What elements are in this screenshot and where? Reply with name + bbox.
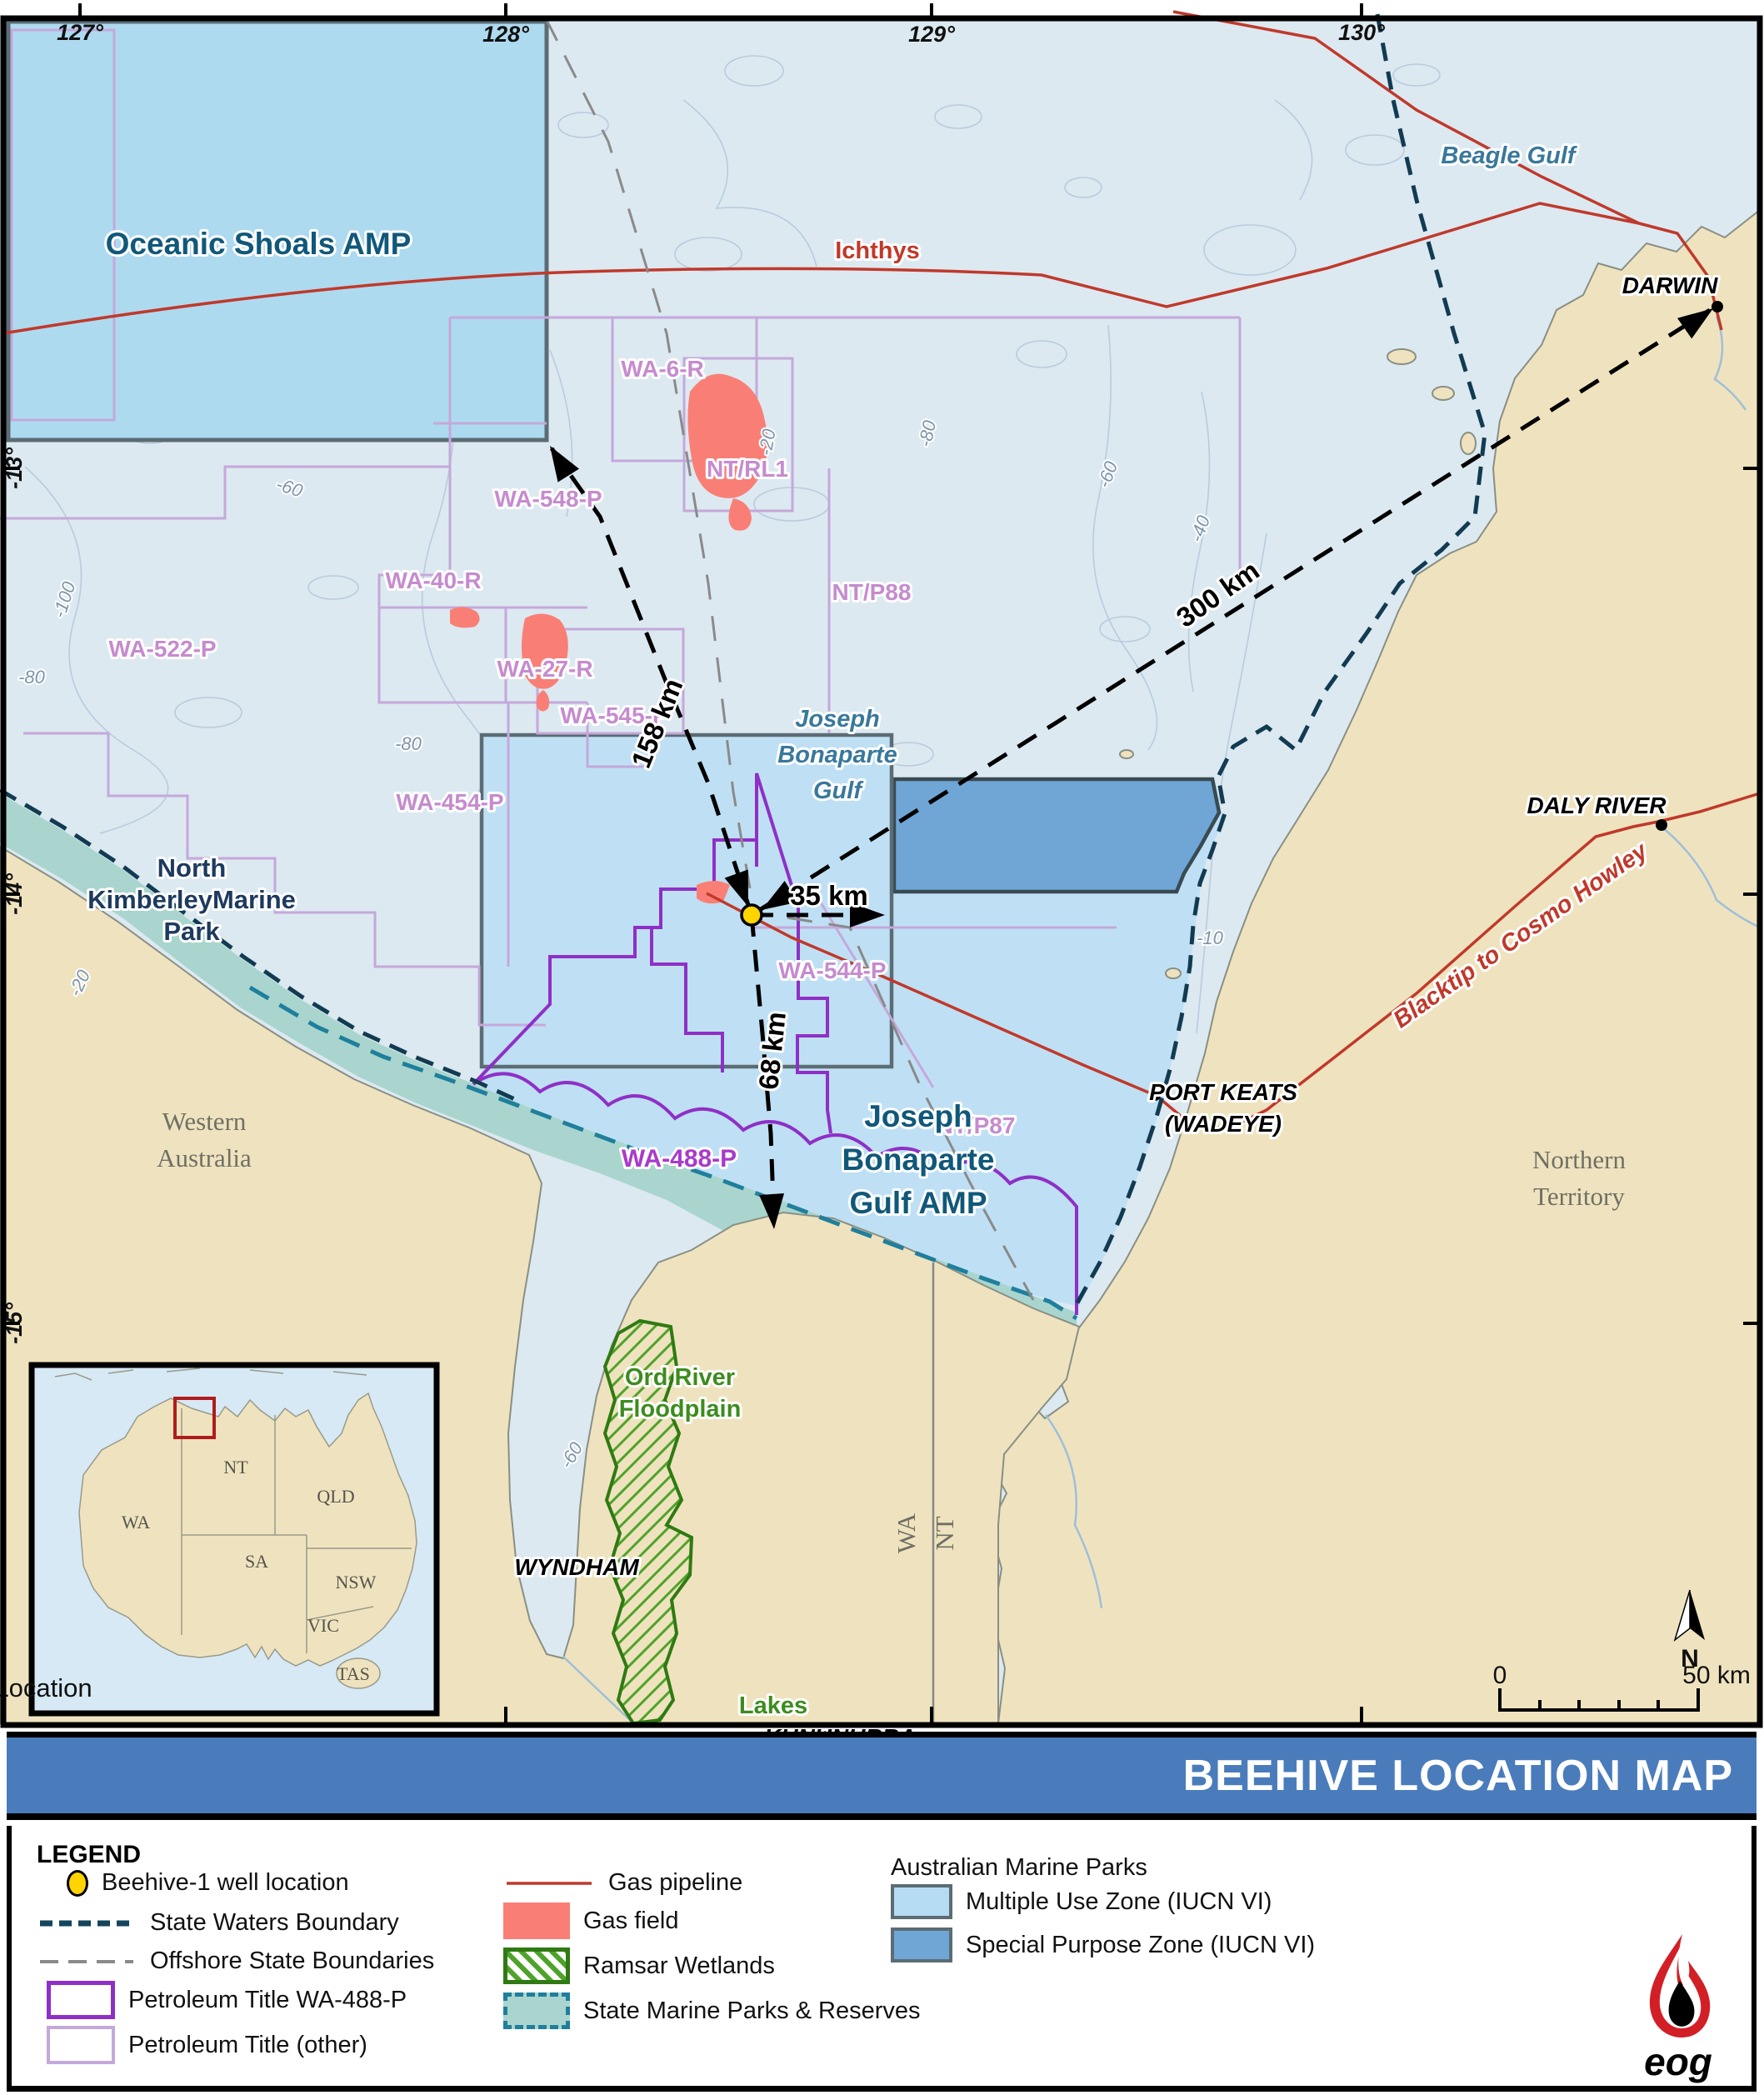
inset-state-qld: QLD	[317, 1486, 354, 1507]
ord-river-label: Ord River	[625, 1364, 735, 1391]
contour-label: -80	[18, 667, 46, 687]
lon-label: 130°	[1338, 20, 1385, 45]
jbg-label: Joseph	[795, 706, 880, 732]
title-label-wa544: WA-544-P	[778, 957, 886, 983]
gas-field-swatch-icon	[503, 1902, 570, 1939]
eog-logo: eog	[1628, 1932, 1728, 2079]
inset-location-label: Location	[0, 1673, 92, 1702]
nk-marine-park-label: North	[157, 853, 227, 882]
jbg-amp-label: Gulf AMP	[849, 1186, 987, 1220]
legend-heading: LEGEND	[37, 1841, 141, 1869]
jbg-amp-label: Bonaparte	[842, 1142, 995, 1177]
western-australia-label: Australia	[157, 1143, 252, 1172]
legend-item-multiple-use-zone: Multiple Use Zone (IUCN VI)	[891, 1884, 1272, 1919]
oceanic-shoals-amp-label: Oceanic Shoals AMP	[106, 227, 412, 261]
contour-label: -10	[1197, 927, 1224, 948]
northern-territory-label: Territory	[1533, 1182, 1625, 1211]
multiple-use-zone-swatch-icon	[891, 1884, 952, 1919]
lon-label: 128°	[482, 22, 529, 47]
daly-river-label: DALY RIVER	[1527, 792, 1667, 818]
title-label-wa488: WA-488-P	[622, 1145, 737, 1172]
jbg-label: Bonaparte	[777, 742, 897, 768]
jbg-amp-label: Joseph	[864, 1099, 972, 1133]
title-label-wa548: WA-548-P	[494, 486, 602, 512]
inset-state-nt: NT	[223, 1457, 248, 1477]
wa488-outline-icon	[47, 1981, 115, 2019]
legend-item-offshore-boundaries: Offshore State Boundaries	[37, 1947, 434, 1975]
lon-label: 129°	[908, 22, 955, 47]
title-label-ntp88: NT/P88	[832, 579, 912, 605]
ord-river-label: Floodplain	[619, 1396, 742, 1422]
legend-item-well: Beehive-1 well location	[37, 1869, 349, 1897]
title-bar: BEEHIVE LOCATION MAP	[7, 1732, 1757, 1820]
legend-item-state-marine-parks: State Marine Parks & Reserves	[503, 1992, 921, 2029]
distance-label-35: 35 km	[790, 880, 868, 911]
contour-label: -80	[395, 733, 422, 754]
western-australia-label: Western	[162, 1107, 247, 1136]
eog-flame-icon	[1637, 1932, 1720, 2041]
ramsar-swatch-icon	[503, 1947, 570, 1984]
north-label: N	[1681, 1645, 1699, 1672]
legend-item-gas-field: Gas field	[503, 1902, 678, 1939]
main-map: 127° 128° 129° 130° -13° -14° -15° Ocean…	[0, 0, 1764, 1732]
state-waters-line-icon	[37, 1917, 137, 1930]
inset-state-sa: SA	[245, 1551, 268, 1572]
legend-item-gas-pipeline: Gas pipeline	[503, 1869, 742, 1897]
title-label-ntrl1: NT/RL1	[707, 456, 788, 482]
port-keats-label: PORT KEATS	[1149, 1079, 1297, 1105]
legend-item-ramsar: Ramsar Wetlands	[503, 1947, 775, 1984]
legend-item-state-waters: State Waters Boundary	[37, 1909, 399, 1937]
beehive-1-well-marker	[742, 905, 762, 925]
jbg-label: Gulf	[813, 777, 864, 804]
inset-state-tas: TAS	[337, 1663, 370, 1684]
inset-state-nsw: NSW	[336, 1572, 377, 1592]
inset-state-wa: WA	[122, 1512, 150, 1532]
legend-item-special-purpose-zone: Special Purpose Zone (IUCN VI)	[891, 1927, 1315, 1962]
nk-marine-park-label: Park	[163, 917, 220, 946]
state-marine-parks-swatch-icon	[503, 1992, 570, 2029]
eog-logo-text: eog	[1628, 2045, 1728, 2079]
port-keats-label: (WADEYE)	[1165, 1111, 1282, 1137]
wa-border-label: WA	[892, 1512, 921, 1553]
wyndham-label: WYNDHAM	[514, 1554, 639, 1580]
inset-state-vic: VIC	[307, 1615, 339, 1636]
inset-map: WA NT QLD SA NSW VIC TAS Location	[0, 1365, 437, 1713]
well-icon	[67, 1870, 88, 1897]
title-label-wa454: WA-454-P	[396, 789, 503, 815]
scale-zero-label: 0	[1493, 1662, 1507, 1689]
offshore-boundary-line-icon	[37, 1955, 137, 1968]
map-title: BEEHIVE LOCATION MAP	[1183, 1751, 1757, 1801]
lakes-argyle-label: Lakes	[739, 1692, 807, 1719]
other-title-outline-icon	[47, 2026, 115, 2064]
nt-border-label: NT	[930, 1516, 959, 1550]
title-label-wa6r: WA-6-R	[621, 356, 704, 382]
legend-item-title-other: Petroleum Title (other)	[37, 2026, 367, 2064]
title-label-wa40r: WA-40-R	[385, 567, 481, 593]
lon-label: 127°	[57, 20, 103, 45]
gas-pipeline-line-icon	[503, 1877, 595, 1890]
title-label-wa522: WA-522-P	[108, 636, 216, 662]
darwin-label: DARWIN	[1622, 272, 1718, 298]
legend-item-title-wa488: Petroleum Title WA-488-P	[37, 1981, 407, 2019]
special-purpose-zone-swatch-icon	[891, 1927, 952, 1962]
northern-territory-label: Northern	[1532, 1145, 1626, 1174]
ichthys-pipeline-label: Ichthys	[835, 237, 920, 264]
nk-marine-park-label: KimberleyMarine	[87, 885, 296, 914]
title-label-wa27r: WA-27-R	[497, 656, 592, 682]
page: 127° 128° 129° 130° -13° -14° -15° Ocean…	[0, 0, 1764, 2095]
legend-panel: LEGEND Beehive-1 well location State Wat…	[7, 1826, 1757, 2092]
amp-legend-header: Australian Marine Parks	[891, 1854, 1147, 1882]
beagle-gulf-label: Beagle Gulf	[1441, 142, 1577, 169]
